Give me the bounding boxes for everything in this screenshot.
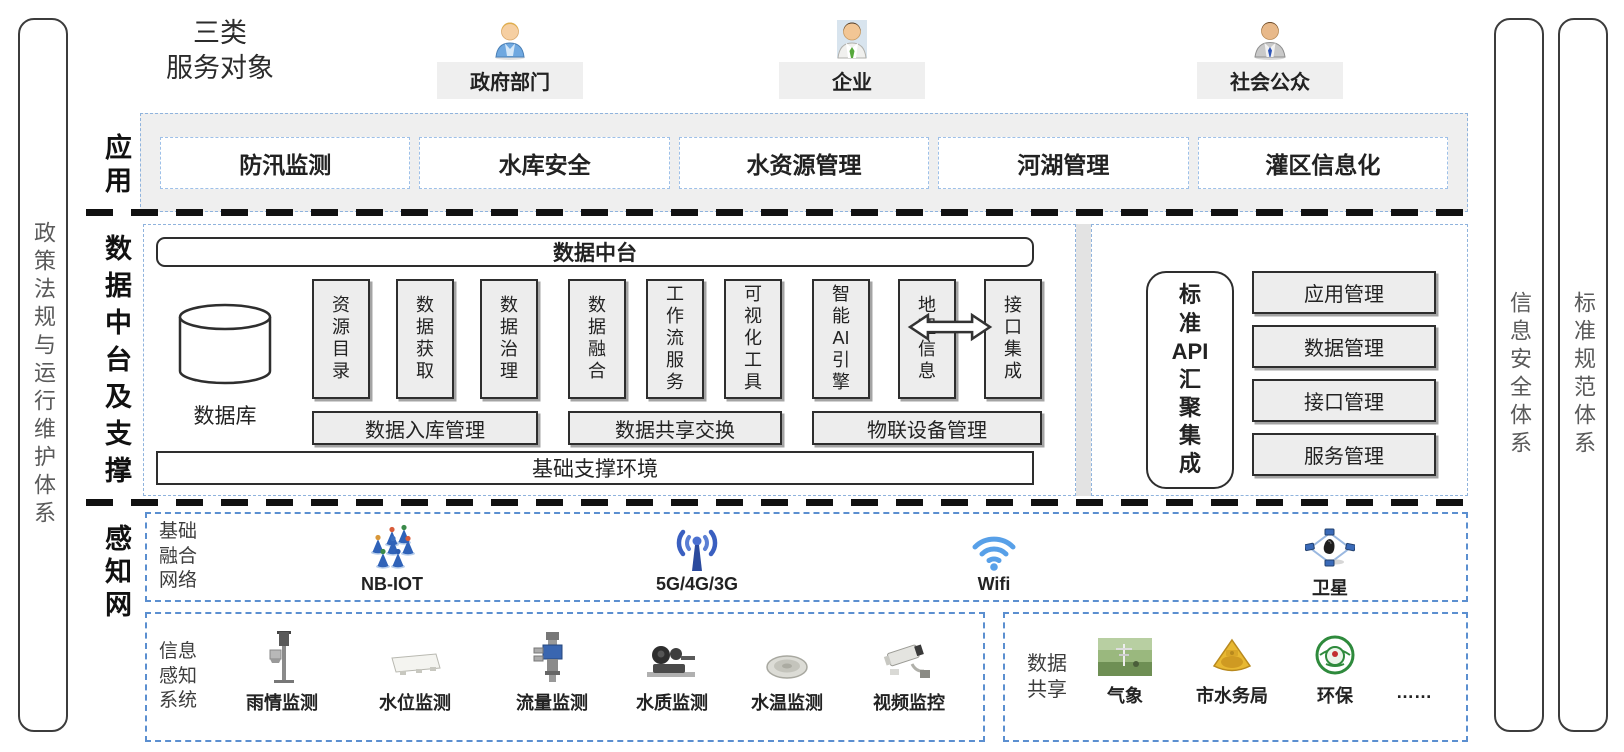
sharing-label: 气象 — [1107, 682, 1143, 708]
data-platform-header: 数据中台 — [156, 237, 1034, 267]
capability-char: 集 — [1004, 339, 1022, 361]
capability-char: 流 — [666, 328, 684, 350]
device-label: 雨情监测 — [246, 689, 318, 715]
capability-char: 务 — [666, 372, 684, 394]
platform-group: 资源目录数据获取数据治理数据入库管理 — [312, 279, 538, 445]
dashed-divider-top — [86, 209, 1470, 216]
capability-char: 引 — [832, 350, 850, 372]
nbiot-cluster-icon — [366, 522, 418, 572]
capability-char: 治 — [500, 339, 518, 361]
pillar-standards: 标准规范体系 — [1558, 18, 1608, 732]
platform-capability-box: 数据融合 — [568, 279, 626, 399]
capability-char: 服 — [666, 350, 684, 372]
device-item: 水温监测 — [727, 624, 847, 715]
perception-systems-label: 信息感知系统 — [159, 640, 197, 714]
device-item: 流量监测 — [492, 624, 612, 715]
service-objects-title-line2: 服务对象 — [140, 51, 300, 86]
caption-line: 共享 — [1027, 677, 1067, 703]
standard-api-line: 集 — [1179, 422, 1201, 450]
capability-char: 作 — [666, 306, 684, 328]
caption-line: 信息 — [159, 640, 197, 665]
public-person-icon — [1250, 18, 1290, 60]
network-label: Wifi — [978, 574, 1011, 595]
management-box: 数据管理 — [1252, 325, 1436, 368]
management-box: 应用管理 — [1252, 271, 1436, 314]
database-label: 数据库 — [170, 400, 280, 430]
capability-char: 化 — [744, 328, 762, 350]
platform-group: 数据融合工作流服务可视化工具数据共享交换 — [568, 279, 782, 445]
platform-capability-box: 数据治理 — [480, 279, 538, 399]
capability-char: AI — [832, 328, 849, 350]
application-box: 水资源管理 — [679, 137, 929, 189]
standard-api-line: 成 — [1179, 450, 1201, 478]
capability-char: 资 — [332, 295, 350, 317]
device-item: 雨情监测 — [222, 624, 342, 715]
capability-char: 具 — [744, 372, 762, 394]
audience-public: 社会公众 — [1190, 18, 1350, 99]
capability-char: 数 — [500, 295, 518, 317]
capability-char: 合 — [588, 361, 606, 383]
capability-char: 理 — [500, 361, 518, 383]
water-quality-icon — [643, 624, 701, 684]
capability-char: 工 — [666, 284, 684, 306]
platform-capability-box: 数据获取 — [396, 279, 454, 399]
capability-char: 数 — [588, 295, 606, 317]
capability-char: 可 — [744, 284, 762, 306]
network-item: Wifi — [919, 522, 1069, 595]
audience-government-label: 政府部门 — [437, 62, 583, 99]
caption-line: 网络 — [159, 569, 197, 594]
sharing-item: …… — [1359, 628, 1469, 703]
capability-char: 接 — [1004, 295, 1022, 317]
sharing-item: 市水务局 — [1177, 628, 1287, 708]
network-item: NB-IOT — [317, 522, 467, 595]
application-box: 水库安全 — [419, 137, 669, 189]
capability-char: 据 — [416, 317, 434, 339]
capability-char: 录 — [332, 361, 350, 383]
pillar-standards-label: 标准规范体系 — [1567, 291, 1599, 459]
management-list: 应用管理数据管理接口管理服务管理 — [1252, 271, 1436, 476]
application-band: 防汛监测水库安全水资源管理河湖管理灌区信息化 — [140, 113, 1468, 212]
audience-enterprise: 企业 — [772, 18, 932, 99]
standard-api-line: API — [1172, 338, 1209, 366]
architecture-diagram: 政策法规与运行维护体系 信息安全体系 标准规范体系 三类 服务对象 政府部门 企… — [0, 0, 1624, 752]
data-platform-panel: 数据中台 数据库 资源目录数据获取数据治理数据入库管理数据融合工作流服务可视化工… — [143, 224, 1076, 496]
device-item: 水位监测 — [355, 624, 475, 715]
capability-char: 口 — [1004, 317, 1022, 339]
pillar-security: 信息安全体系 — [1494, 18, 1544, 732]
service-objects-title-line1: 三类 — [140, 16, 300, 51]
fusion-network-label: 基础融合网络 — [159, 520, 197, 594]
network-item: 卫星 — [1255, 522, 1405, 600]
capability-char: 息 — [918, 361, 936, 383]
platform-capability-box: 智能AI引擎 — [812, 279, 870, 399]
gold-emblem-icon — [1208, 628, 1256, 676]
dashed-divider-bottom — [86, 499, 1470, 506]
capability-char: 目 — [332, 339, 350, 361]
weather-photo-icon — [1098, 628, 1152, 676]
standard-api-line: 准 — [1179, 310, 1201, 338]
platform-group-bar: 物联设备管理 — [812, 411, 1042, 445]
sensing-layer-label: 感知网 — [94, 524, 136, 623]
bidirectional-arrow-icon — [907, 310, 993, 344]
cell-antenna-icon — [673, 522, 721, 572]
capability-char: 融 — [588, 339, 606, 361]
wifi-icon — [970, 522, 1018, 572]
capability-char: 能 — [832, 306, 850, 328]
standard-api-line: 标 — [1179, 281, 1201, 309]
audience-government: 政府部门 — [430, 18, 590, 99]
sharing-item: 气象 — [1070, 628, 1180, 708]
management-box: 服务管理 — [1252, 433, 1436, 476]
platform-columns: 资源目录数据获取数据治理 — [312, 279, 538, 399]
platform-group-bar: 数据共享交换 — [568, 411, 782, 445]
network-label: NB-IOT — [361, 574, 423, 595]
platform-capability-box: 可视化工具 — [724, 279, 782, 399]
service-objects-title: 三类 服务对象 — [140, 16, 300, 86]
capability-char: 据 — [588, 317, 606, 339]
pillar-security-label: 信息安全体系 — [1503, 291, 1535, 459]
device-label: 水位监测 — [379, 689, 451, 715]
caption-line: 数据 — [1027, 651, 1067, 677]
enterprise-person-icon — [832, 18, 872, 60]
platform-capability-box: 资源目录 — [312, 279, 370, 399]
capability-char: 源 — [332, 317, 350, 339]
capability-char: 成 — [1004, 361, 1022, 383]
pillar-policy-label: 政策法规与运行维护体系 — [27, 221, 59, 529]
capability-char: 擎 — [832, 372, 850, 394]
caption-line: 融合 — [159, 545, 197, 570]
fusion-network-box: 基础融合网络 NB-IOT5G/4G/3GWifi卫星 — [145, 512, 1468, 602]
capability-char: 取 — [416, 361, 434, 383]
perception-systems-box: 信息感知系统 雨情监测水位监测流量监测水质监测水温监测视频监控 — [145, 612, 985, 742]
platform-group-bar: 数据入库管理 — [312, 411, 538, 445]
device-label: 水温监测 — [751, 689, 823, 715]
network-label: 5G/4G/3G — [656, 574, 738, 595]
platform-columns: 数据融合工作流服务可视化工具 — [568, 279, 782, 399]
capability-char: 据 — [500, 317, 518, 339]
caption-line: 系统 — [159, 689, 197, 714]
caption-line: 感知 — [159, 665, 197, 690]
flow-meter-icon — [532, 624, 572, 684]
device-label: 水质监测 — [636, 689, 708, 715]
device-label: 流量监测 — [516, 689, 588, 715]
water-temp-icon — [762, 624, 812, 684]
sharing-label: …… — [1396, 682, 1432, 703]
management-box: 接口管理 — [1252, 379, 1436, 422]
data-sharing-label: 数据共享 — [1027, 651, 1067, 703]
app-layer-label: 应用 — [94, 133, 136, 199]
capability-char: 视 — [744, 306, 762, 328]
water-level-icon — [386, 624, 444, 684]
capability-char: 工 — [744, 350, 762, 372]
rain-gauge-icon — [262, 624, 302, 684]
capability-char: 智 — [832, 284, 850, 306]
device-label: 视频监控 — [873, 689, 945, 715]
database: 数据库 — [170, 301, 280, 430]
network-item: 5G/4G/3G — [622, 522, 772, 595]
capability-char: 获 — [416, 339, 434, 361]
application-box: 防汛监测 — [160, 137, 410, 189]
platform-capability-box: 工作流服务 — [646, 279, 704, 399]
government-person-icon — [490, 18, 530, 60]
network-label: 卫星 — [1312, 574, 1348, 600]
sharing-label: 市水务局 — [1196, 682, 1268, 708]
cctv-camera-icon — [882, 624, 936, 684]
platform-group: 智能AI引擎地理信息接口集成物联设备管理 — [812, 279, 1042, 445]
standard-api-line: 聚 — [1179, 394, 1201, 422]
caption-line: 基础 — [159, 520, 197, 545]
platform-band: 数据中台 数据库 资源目录数据获取数据治理数据入库管理数据融合工作流服务可视化工… — [143, 224, 1468, 496]
capability-char: 数 — [416, 295, 434, 317]
data-sharing-box: 数据共享 气象市水务局环保…… — [1003, 612, 1468, 742]
pillar-policy: 政策法规与运行维护体系 — [18, 18, 68, 732]
audience-enterprise-label: 企业 — [779, 62, 925, 99]
platform-footer-bar: 基础支撑环境 — [156, 451, 1034, 485]
application-box: 灌区信息化 — [1198, 137, 1448, 189]
standard-api-box: 标准API汇聚集成 — [1146, 271, 1234, 489]
platform-layer-label: 数据中台及支撑 — [94, 234, 136, 493]
api-panel: 标准API汇聚集成 应用管理数据管理接口管理服务管理 — [1091, 224, 1468, 496]
green-emblem-icon — [1314, 628, 1356, 676]
database-cylinder-icon — [175, 301, 275, 389]
satellite-icon — [1305, 522, 1355, 572]
device-item: 视频监控 — [849, 624, 969, 715]
standard-api-line: 汇 — [1179, 366, 1201, 394]
sharing-label: 环保 — [1317, 682, 1353, 708]
audience-public-label: 社会公众 — [1197, 62, 1343, 99]
application-box: 河湖管理 — [938, 137, 1188, 189]
device-item: 水质监测 — [612, 624, 732, 715]
